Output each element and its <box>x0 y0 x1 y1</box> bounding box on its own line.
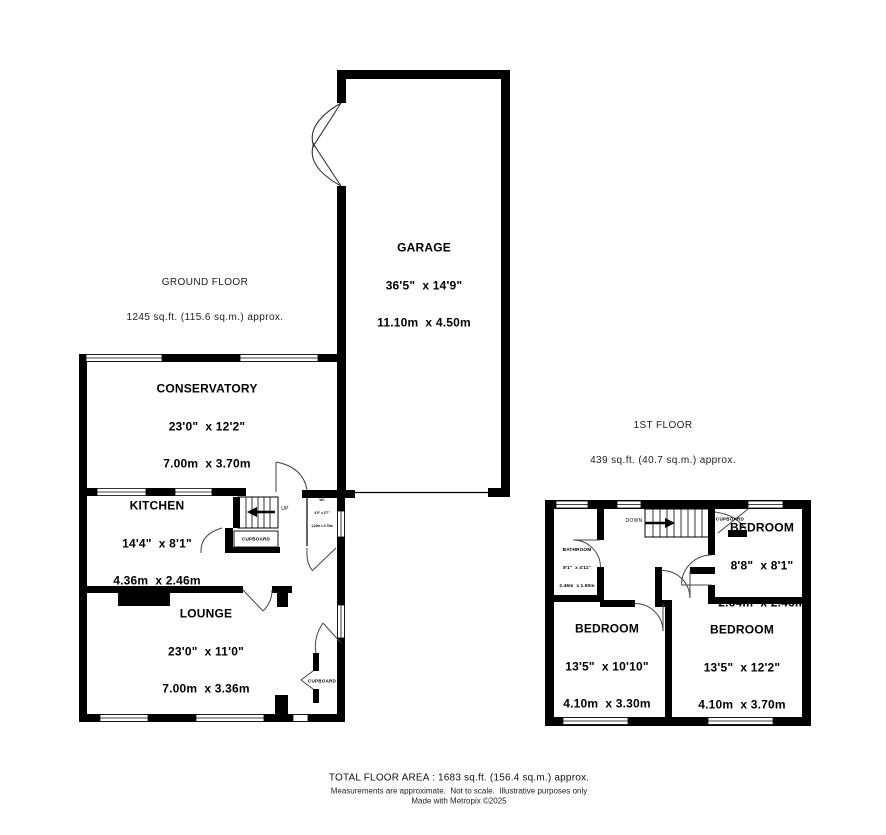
stairs-down-label: DOWN <box>625 518 642 524</box>
stairs-down <box>645 509 710 537</box>
room-dim-imperial: 8'1" x 4'11" <box>559 566 594 572</box>
room-label-bedroom3: BEDROOM 13'5" x 12'2" 4.10m x 3.70m <box>698 598 786 736</box>
room-dim-imperial: 8'8" x 8'1" <box>718 559 806 572</box>
ground-floor-header: GROUND FLOOR 1245 sq.ft. (115.6 sq.m.) a… <box>127 254 284 346</box>
room-label-lounge: LOUNGE 23'0" x 11'0" 7.00m x 3.36m <box>162 582 250 720</box>
room-dim-imperial: 4'0" x 2'7" <box>311 511 333 515</box>
room-dim-metric: 1.22m x 0.79m <box>311 524 333 528</box>
wc-door <box>307 548 336 571</box>
room-label-bedroom2: BEDROOM 13'5" x 10'10" 4.10m x 3.30m <box>563 597 651 735</box>
room-name: CONSERVATORY <box>156 382 257 395</box>
stairs-up <box>233 497 278 528</box>
room-dim-imperial: 13'5" x 10'10" <box>563 660 651 673</box>
ground-floor-area: 1245 sq.ft. (115.6 sq.m.) approx. <box>127 312 284 324</box>
garage-door <box>312 103 341 186</box>
room-name: BEDROOM <box>698 623 786 636</box>
room-dim-metric: 11.10m x 4.50m <box>377 316 471 329</box>
room-dim-imperial: 36'5" x 14'9" <box>377 279 471 292</box>
room-name: WC <box>311 498 333 502</box>
room-dim-imperial: 14'4" x 8'1" <box>113 537 201 550</box>
room-dim-metric: 7.00m x 3.70m <box>156 457 257 470</box>
room-dim-imperial: 23'0" x 12'2" <box>156 420 257 433</box>
room-name: BEDROOM <box>718 521 806 534</box>
stairs-up-label: UP <box>281 506 289 512</box>
footer-disclaimer: Measurements are approximate. Not to sca… <box>331 787 588 796</box>
room-label-bathroom: BATHROOM 8'1" x 4'11" 2.46m x 1.50m <box>559 536 594 602</box>
room-dim-metric: 2.46m x 1.50m <box>559 584 594 590</box>
room-dim-metric: 7.00m x 3.36m <box>162 682 250 695</box>
lounge-cupboard <box>275 653 319 719</box>
floorplan-canvas: GROUND FLOOR 1245 sq.ft. (115.6 sq.m.) a… <box>0 0 886 835</box>
room-name: KITCHEN <box>113 499 201 512</box>
ground-floor-title: GROUND FLOOR <box>127 277 284 289</box>
first-floor-cupboard-label: CUPBOARD <box>716 517 744 522</box>
lounge-cupboard-label: CUPBOARD <box>308 679 336 684</box>
room-name: GARAGE <box>377 241 471 254</box>
stairs-cupboard-label: CUPBOARD <box>242 537 270 542</box>
footer-credit: Made with Metropix ©2025 <box>411 797 506 806</box>
room-name: BATHROOM <box>559 548 594 554</box>
room-name: LOUNGE <box>162 607 250 620</box>
first-floor-area: 439 sq.ft. (40.7 sq.m.) approx. <box>590 455 736 467</box>
room-dim-imperial: 23'0" x 11'0" <box>162 645 250 658</box>
room-label-garage: GARAGE 36'5" x 14'9" 11.10m x 4.50m <box>377 216 471 354</box>
total-floor-area: TOTAL FLOOR AREA : 1683 sq.ft. (156.4 sq… <box>329 773 589 784</box>
room-label-wc: WC 4'0" x 2'7" 1.22m x 0.79m <box>311 490 333 536</box>
room-dim-metric: 4.10m x 3.30m <box>563 697 651 710</box>
room-name: BEDROOM <box>563 622 651 635</box>
room-dim-imperial: 13'5" x 12'2" <box>698 661 786 674</box>
conservatory-door <box>276 462 307 492</box>
room-dim-metric: 4.10m x 3.70m <box>698 698 786 711</box>
first-floor-header: 1ST FLOOR 439 sq.ft. (40.7 sq.m.) approx… <box>590 397 736 489</box>
first-floor-title: 1ST FLOOR <box>590 420 736 432</box>
